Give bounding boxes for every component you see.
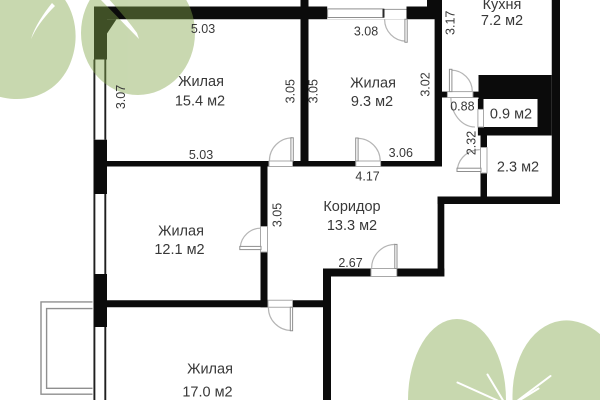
svg-text:4.17: 4.17 xyxy=(355,170,379,184)
svg-text:13.3 м2: 13.3 м2 xyxy=(327,218,377,234)
svg-text:Жилая: Жилая xyxy=(158,224,204,240)
svg-text:2.32: 2.32 xyxy=(464,131,478,155)
svg-text:3.05: 3.05 xyxy=(270,203,284,227)
svg-text:Жилая: Жилая xyxy=(187,362,233,378)
svg-text:17.0 м2: 17.0 м2 xyxy=(182,385,232,401)
svg-text:3.17: 3.17 xyxy=(443,11,457,35)
svg-text:0.9 м2: 0.9 м2 xyxy=(490,107,532,123)
svg-text:3.06: 3.06 xyxy=(389,146,413,160)
svg-text:3.05: 3.05 xyxy=(284,79,298,103)
svg-text:5.03: 5.03 xyxy=(189,148,213,162)
svg-text:3.07: 3.07 xyxy=(114,85,128,109)
svg-text:Жилая: Жилая xyxy=(350,76,396,92)
svg-text:3.02: 3.02 xyxy=(419,72,433,96)
svg-text:2.67: 2.67 xyxy=(338,256,362,270)
svg-text:0.88: 0.88 xyxy=(450,100,474,114)
svg-text:7.2 м2: 7.2 м2 xyxy=(481,13,523,29)
svg-text:3.05: 3.05 xyxy=(306,79,320,103)
svg-text:3.08: 3.08 xyxy=(354,25,378,39)
svg-text:15.4 м2: 15.4 м2 xyxy=(175,94,225,110)
svg-text:9.3 м2: 9.3 м2 xyxy=(351,94,393,110)
svg-text:Коридор: Коридор xyxy=(323,199,380,215)
svg-text:2.3 м2: 2.3 м2 xyxy=(497,160,539,176)
svg-text:12.1 м2: 12.1 м2 xyxy=(154,242,204,258)
svg-text:5.03: 5.03 xyxy=(191,22,215,36)
svg-text:Жилая: Жилая xyxy=(178,74,224,90)
svg-text:Кухня: Кухня xyxy=(483,0,522,13)
